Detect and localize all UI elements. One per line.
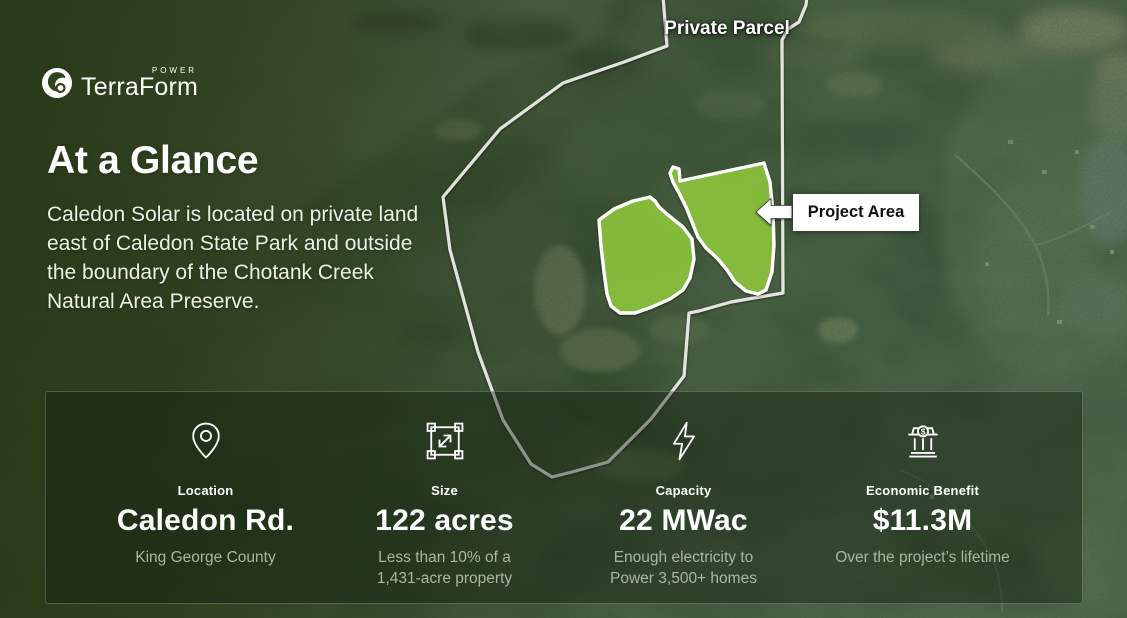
stat-card-location: Location Caledon Rd. King George County [86,418,325,603]
brand-name: TerraForm [81,73,198,101]
brand-superscript: POWER [152,66,197,75]
page: Private Parcel Project Area TerraForm PO… [0,0,1127,618]
stat-value: $11.3M [803,504,1042,538]
project-area-label: Project Area [793,194,919,231]
private-parcel-label: Private Parcel [652,17,802,40]
bank-icon: $ [901,419,945,463]
stat-subtext: King George County [86,547,325,568]
page-description: Caledon Solar is located on private land… [47,200,447,316]
brand-logo: TerraForm POWER [40,66,198,100]
stat-label: Location [86,483,325,498]
terraform-swirl-icon [40,66,74,100]
area-size-icon [423,419,467,463]
stat-value: 122 acres [325,504,564,538]
stat-value: 22 MWac [564,504,803,538]
stat-subtext: Over the project’s lifetime [803,547,1042,568]
svg-text:$: $ [920,427,925,437]
stats-panel: Location Caledon Rd. King George County … [45,391,1083,604]
location-pin-icon [184,419,228,463]
stat-card-capacity: Capacity 22 MWac Enough electricity to P… [564,418,803,603]
stat-card-size: Size 122 acres Less than 10% of a 1,431-… [325,418,564,603]
stat-subtext: Less than 10% of a 1,431-acre property [365,547,525,589]
lightning-bolt-icon [662,419,706,463]
stat-label: Size [325,483,564,498]
stat-card-economic-benefit: $ Economic Benefit $11.3M Over the proje… [803,418,1042,603]
stat-label: Economic Benefit [803,483,1042,498]
stat-label: Capacity [564,483,803,498]
project-area-polygon-west [599,197,694,313]
stat-value: Caledon Rd. [86,504,325,538]
stat-subtext: Enough electricity to Power 3,500+ homes [596,547,771,589]
page-title: At a Glance [47,139,258,183]
